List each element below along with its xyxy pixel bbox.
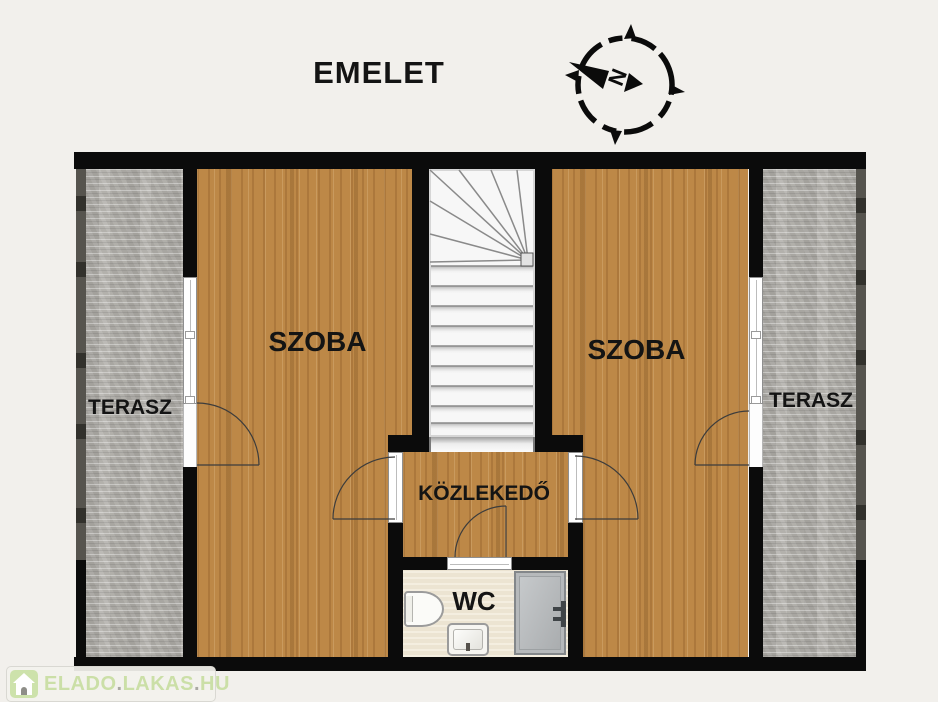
hallway-door-right-frame (568, 452, 583, 523)
house-icon (10, 670, 38, 698)
window-right (749, 277, 763, 404)
stairwell-wall-right (535, 169, 552, 440)
wc-door-frame (447, 557, 512, 570)
hallway-label: KÖZLEKEDŐ (408, 482, 560, 506)
compass-icon: N (563, 13, 695, 159)
hallway-wall-right-lower (568, 523, 583, 657)
stairwell-wall-left (412, 169, 429, 440)
hallway-door-left-frame (388, 452, 403, 523)
sink-icon (447, 623, 489, 656)
room-left-label: SZOBA (250, 326, 385, 358)
hallway-wall-left-lower (388, 523, 403, 657)
room-left-floor (197, 169, 413, 657)
hallway-top-wall-left (388, 435, 429, 452)
terrace-door-right-opening (749, 404, 763, 467)
terrace-left-end-wall (76, 560, 86, 657)
terrace-left-railing (76, 169, 86, 560)
wall-right-upper (749, 169, 763, 277)
watermark: ELADO.LAKAS.HU (6, 666, 216, 702)
stair-landing-threshold (429, 437, 535, 452)
hallway-top-wall-right (535, 435, 583, 452)
terrace-right-end-wall (856, 560, 866, 657)
wall-right-lower (749, 467, 763, 657)
wall-left-lower (183, 467, 197, 657)
window-left (183, 277, 197, 404)
page-title: EMELET (308, 55, 450, 91)
terrace-right-floor (763, 169, 856, 657)
floor-plan: TERASZ SZOBA SZOBA TERASZ KÖZLEKEDŐ WC E… (0, 0, 938, 702)
top-wall (74, 152, 866, 169)
terrace-door-left-opening (183, 404, 197, 467)
terrace-right-label: TERASZ (761, 389, 861, 413)
staircase (429, 169, 535, 437)
stair-newel-post (521, 253, 533, 266)
watermark-text: ELADO.LAKAS.HU (44, 673, 230, 696)
shower-icon (514, 571, 566, 655)
wc-wall-left (403, 557, 447, 570)
wc-label: WC (438, 586, 510, 617)
terrace-right-railing (856, 169, 866, 560)
wall-left-upper (183, 169, 197, 277)
terrace-left-label: TERASZ (80, 396, 180, 420)
wc-wall-right (512, 557, 568, 570)
room-right-label: SZOBA (569, 334, 704, 366)
